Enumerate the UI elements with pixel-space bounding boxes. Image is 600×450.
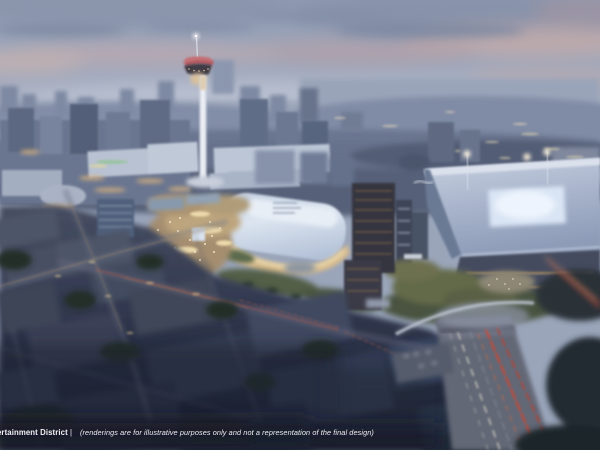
svg-text:(renderings are for illustrati: (renderings are for illustrative purpose… [80, 428, 374, 437]
svg-text:|: | [70, 428, 72, 437]
svg-text:ertainment District: ertainment District [0, 428, 68, 437]
